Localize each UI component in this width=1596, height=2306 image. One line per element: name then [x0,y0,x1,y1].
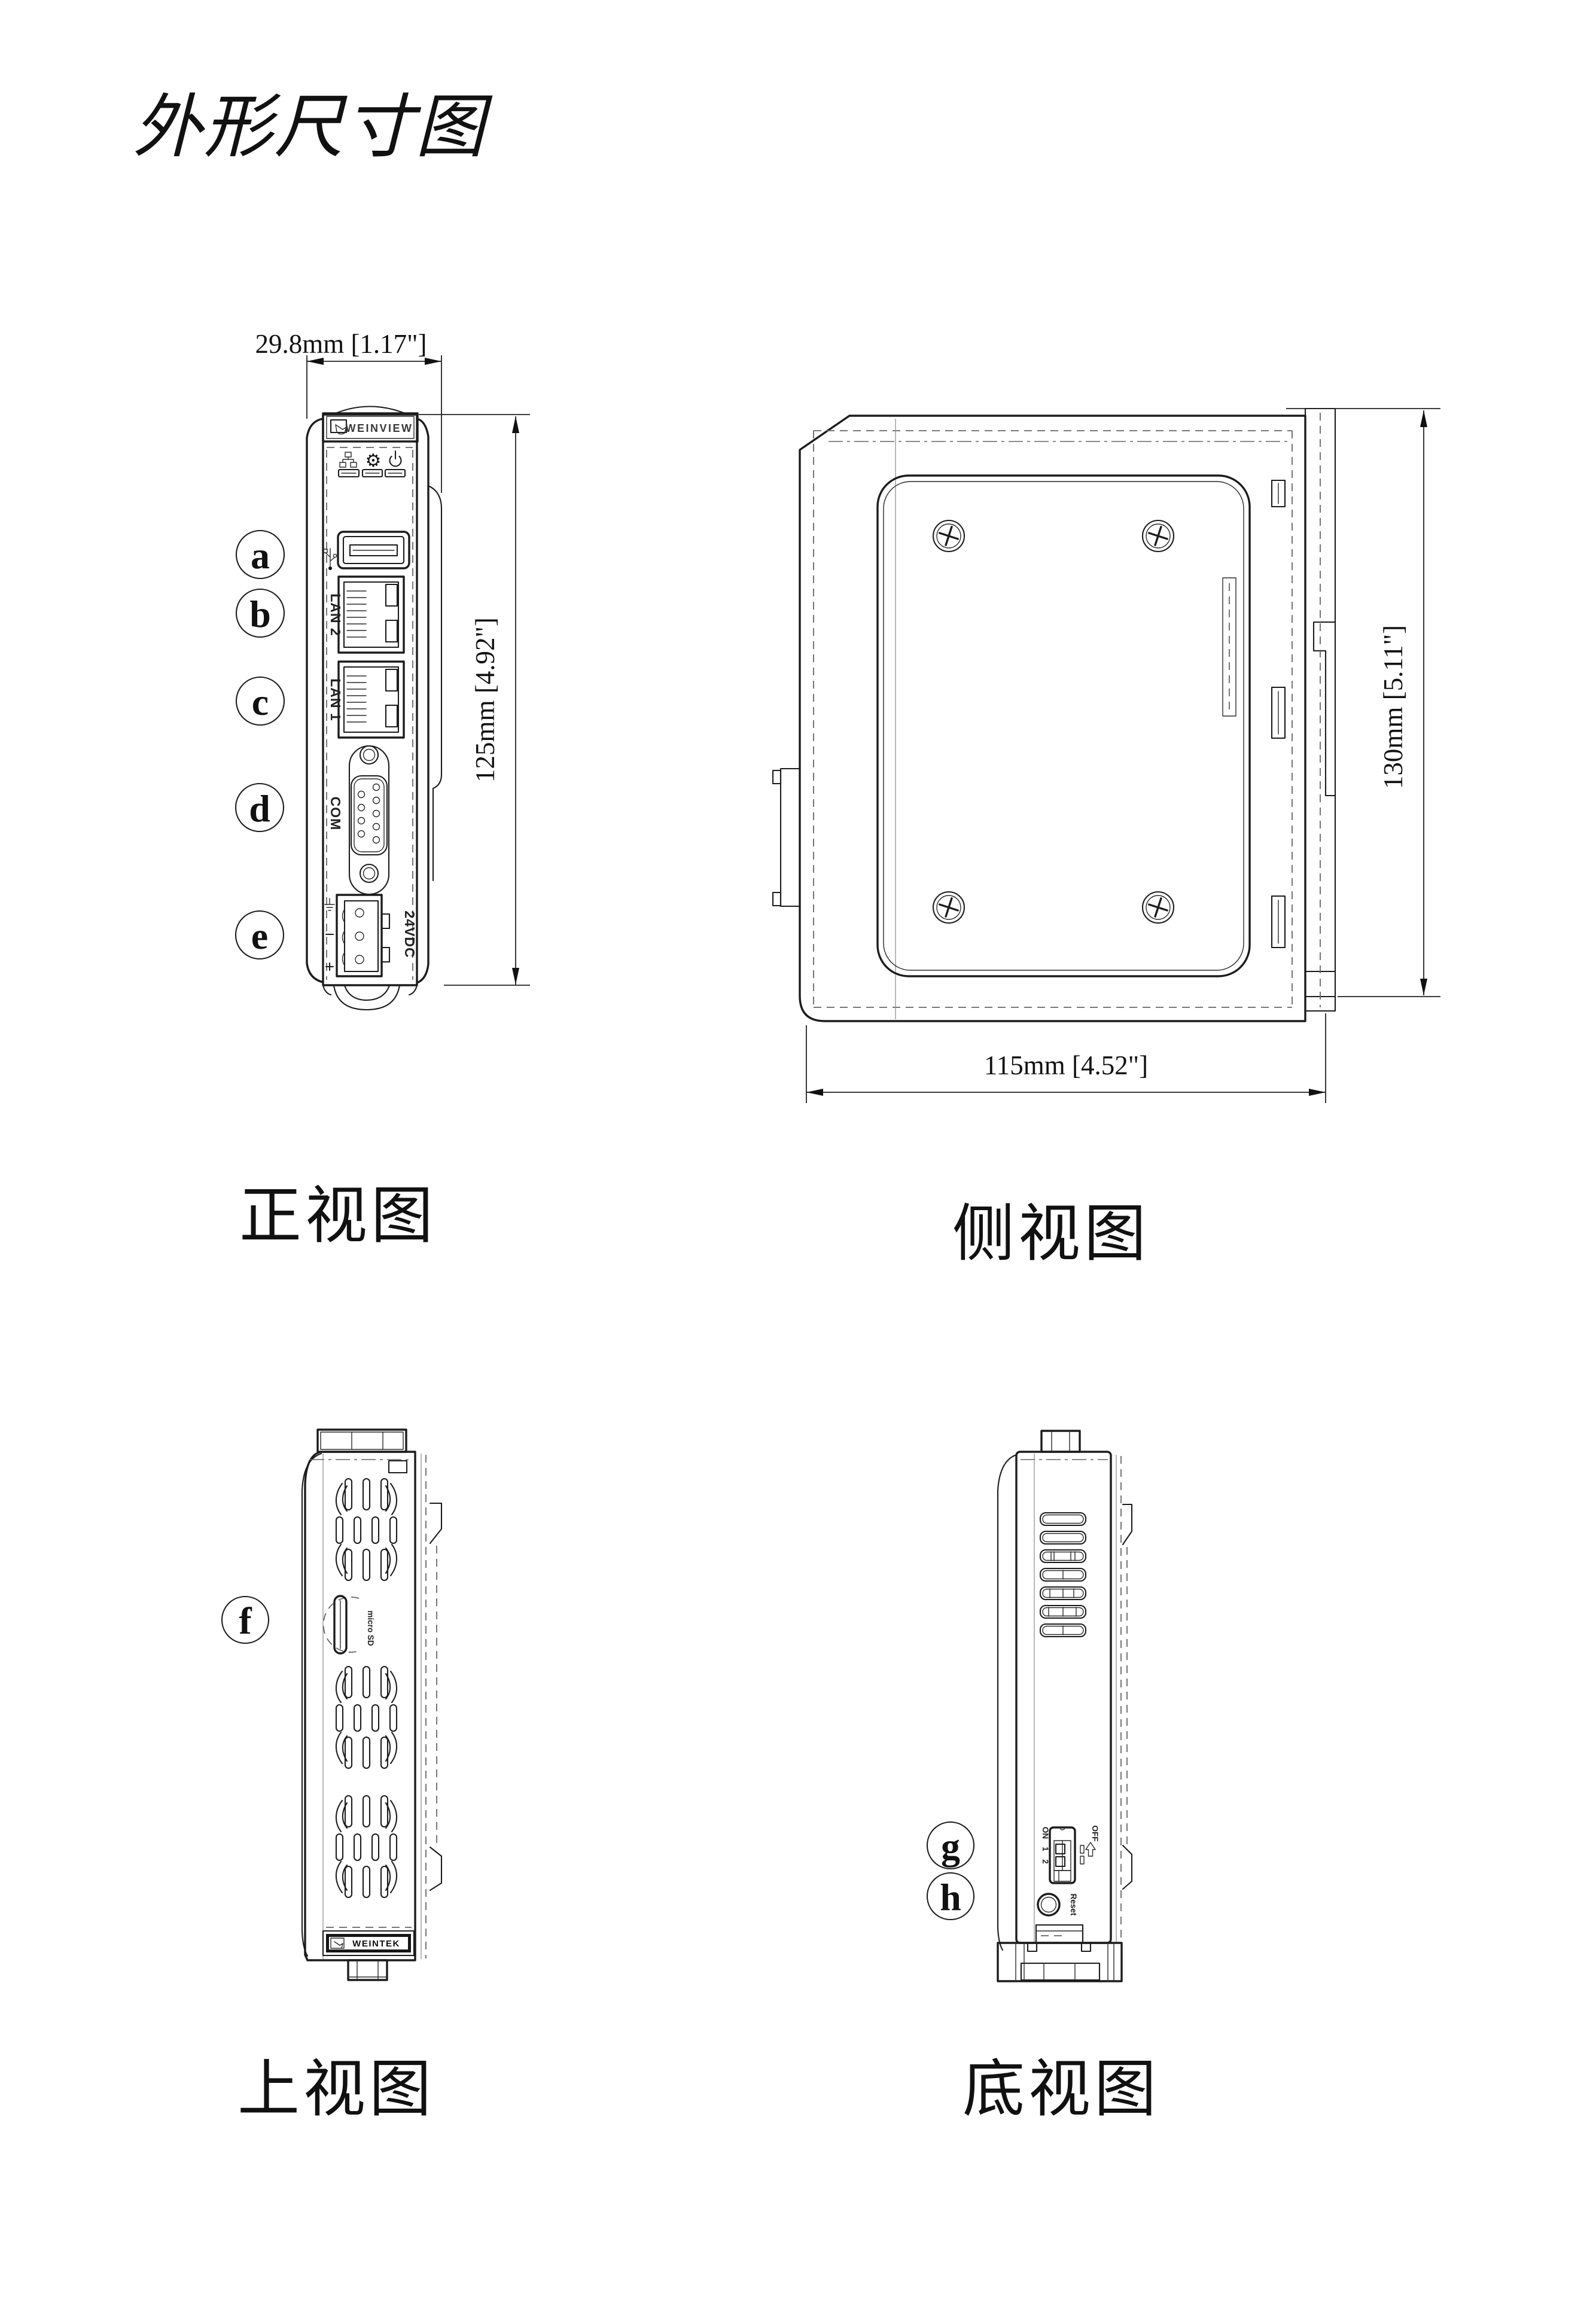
front-din-clip [323,985,417,1010]
callout-e: e [236,911,284,959]
vent-cluster [336,1667,397,1768]
svg-text:b: b [249,593,271,635]
top-view: micro SD WEINTEK [222,1430,441,2125]
right-flange [417,419,428,983]
callout-c: c [236,677,284,725]
vent-slot-dividers [1049,1552,1076,1635]
com-port: COM [328,746,389,894]
side-view-caption: 侧视图 [952,1197,1150,1270]
weintek-logo: WEINTEK [323,1927,414,1955]
reset-button: Reset [1038,1894,1078,1916]
callout-b: b [236,589,284,637]
svg-text:a: a [251,534,270,577]
lan1-label: LAN 1 [328,678,343,721]
power-label: 24VDC [402,910,418,958]
sd-logo: micro SD [366,1610,375,1646]
lan1-port: LAN 1 [328,662,404,738]
dip-on-label: ON [1041,1827,1050,1839]
top-small-window [389,1461,407,1473]
weinview-logo: WEINVIEW [323,413,418,441]
power-terminal: 24VDC [325,895,418,976]
bottom-view-caption: 底视图 [963,2052,1160,2125]
network-status-icon [340,452,357,467]
side-height-dimension: 130mm [5.11"] [1378,625,1408,789]
top-view-caption: 上视图 [237,2052,435,2125]
usb-icon [324,549,337,570]
dip-1-label: 1 [1041,1847,1050,1851]
top-din-tab [348,1960,387,1980]
page-title: 外形尺寸图 [133,87,493,167]
din-rail-bracket [1305,409,1335,1011]
dip-switch: ON 1 2 OFF [1041,1826,1099,1884]
side-body [800,416,1305,1021]
vent-cluster [336,1796,397,1897]
com-side-profile [773,769,800,906]
side-depth-dimension: 115mm [4.52"] [984,1050,1148,1080]
vent-slot [1040,1550,1086,1562]
power-icon [390,451,401,466]
technical-drawing: 外形尺寸图 29.8mm [1.17"] 125mm [4.92"] [0,0,1596,2306]
callout-a: a [236,531,284,578]
callout-f: f [222,1597,269,1643]
usb-port [324,532,409,570]
svg-text:e: e [251,915,268,957]
mounting-screw [1143,520,1174,552]
led-indicators: ⚙ [339,451,405,477]
mounting-screw [933,892,964,923]
mounting-screw [1143,892,1174,923]
bottom-right-bracket [1116,1455,1132,1942]
com-label: COM [328,797,343,831]
bottom-view: ON 1 2 OFF Reset [927,1431,1160,2125]
lan2-port: LAN 2 [328,577,404,653]
callout-g: g [927,1822,974,1869]
reset-label: Reset [1069,1894,1078,1916]
callout-h: h [927,1873,974,1920]
vent-cluster [336,1479,397,1580]
din-rail-slots [1272,480,1285,948]
vent-slot [1040,1513,1086,1525]
svg-text:g: g [941,1825,960,1868]
dimension-drawing-page: 外形尺寸图 29.8mm [1.17"] 125mm [4.92"] [0,0,1596,2306]
dip-2-label: 2 [1041,1859,1050,1864]
svg-text:c: c [252,681,269,723]
svg-text:WEINVIEW: WEINVIEW [346,422,413,434]
bottom-left-wing [998,1455,1016,1950]
svg-text:d: d [249,787,270,830]
svg-text:h: h [940,1876,961,1918]
dip-direction-arrow-icon [1086,1842,1095,1856]
sd-card-slot: micro SD [324,1596,375,1653]
front-width-dimension: 29.8mm [1.17"] [255,329,427,359]
callout-d: d [236,784,284,831]
vent-slot [1040,1531,1086,1544]
top-right-bracket [421,1454,441,1959]
mounting-screw [933,520,964,552]
svg-text:WEINTEK: WEINTEK [352,1939,400,1949]
side-flap-profile [428,486,441,881]
top-connector-tab [318,1430,406,1452]
dip-off-label: OFF [1091,1826,1099,1842]
left-flange [307,419,323,982]
side-view: 130mm [5.11"] 115mm [4.52"] 侧视图 [773,409,1440,1270]
gear-icon: ⚙ [366,451,382,471]
front-height-dimension: 125mm [4.92"] [470,617,500,782]
front-view: 29.8mm [1.17"] 125mm [4.92"] WEINVIEW [236,329,530,1252]
lan2-label: LAN 2 [328,593,343,636]
bottom-top-din-tab [1041,1431,1080,1452]
front-view-caption: 正视图 [239,1179,437,1252]
svg-text:f: f [239,1600,252,1642]
side-inner-plate [878,476,1250,976]
